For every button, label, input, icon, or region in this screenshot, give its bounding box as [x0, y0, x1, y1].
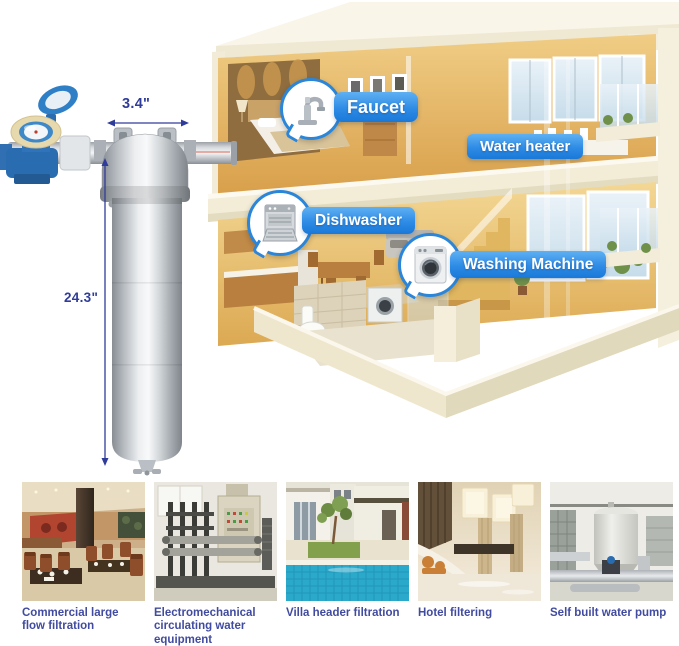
application-water-pump: Self built water pump — [550, 482, 673, 646]
faucet-callout-bubble — [280, 78, 342, 140]
drain-fitting — [133, 460, 161, 476]
application-caption: Villa header filtration — [286, 607, 416, 620]
washing-machine-icon — [409, 244, 451, 286]
application-caption: Commercial large flow filtration — [22, 607, 128, 634]
application-gallery: Commercial large flow filtration — [22, 482, 673, 646]
washing-machine-label: Washing Machine — [450, 251, 606, 278]
application-caption: Self built water pump — [550, 607, 679, 620]
width-dimension-label: 3.4" — [122, 96, 150, 112]
water-heater-label: Water heater — [467, 134, 583, 159]
faucet-icon — [291, 89, 331, 129]
meter-lid-open — [34, 80, 83, 121]
photo-water-pump-tank — [550, 482, 673, 601]
dishwasher-label: Dishwasher — [302, 207, 415, 234]
cutaway-glass — [544, 60, 550, 340]
height-dimension-arrow — [99, 158, 111, 466]
application-villa: Villa header filtration — [286, 482, 409, 646]
faucet-label: Faucet — [334, 92, 418, 122]
photo-villa-pool — [286, 482, 409, 601]
width-dimension-arrow — [107, 117, 189, 129]
photo-hotel-lobby — [418, 482, 541, 601]
product-infographic: 3.4" 24.3" Faucet Water heater — [0, 0, 679, 646]
photo-restaurant-interior — [22, 482, 145, 601]
filter-product-illustration — [0, 78, 250, 478]
height-dimension-label: 24.3" — [64, 290, 98, 305]
application-electromechanical: Electromechanical circulating water equi… — [154, 482, 277, 646]
photo-water-treatment-equipment — [154, 482, 277, 601]
application-hotel: Hotel filtering — [418, 482, 541, 646]
application-caption: Hotel filtering — [418, 607, 548, 620]
dishwasher-icon — [258, 201, 302, 245]
cutaway-glass — [566, 58, 570, 338]
application-caption: Electromechanical circulating water equi… — [154, 607, 260, 646]
application-commercial: Commercial large flow filtration — [22, 482, 145, 646]
